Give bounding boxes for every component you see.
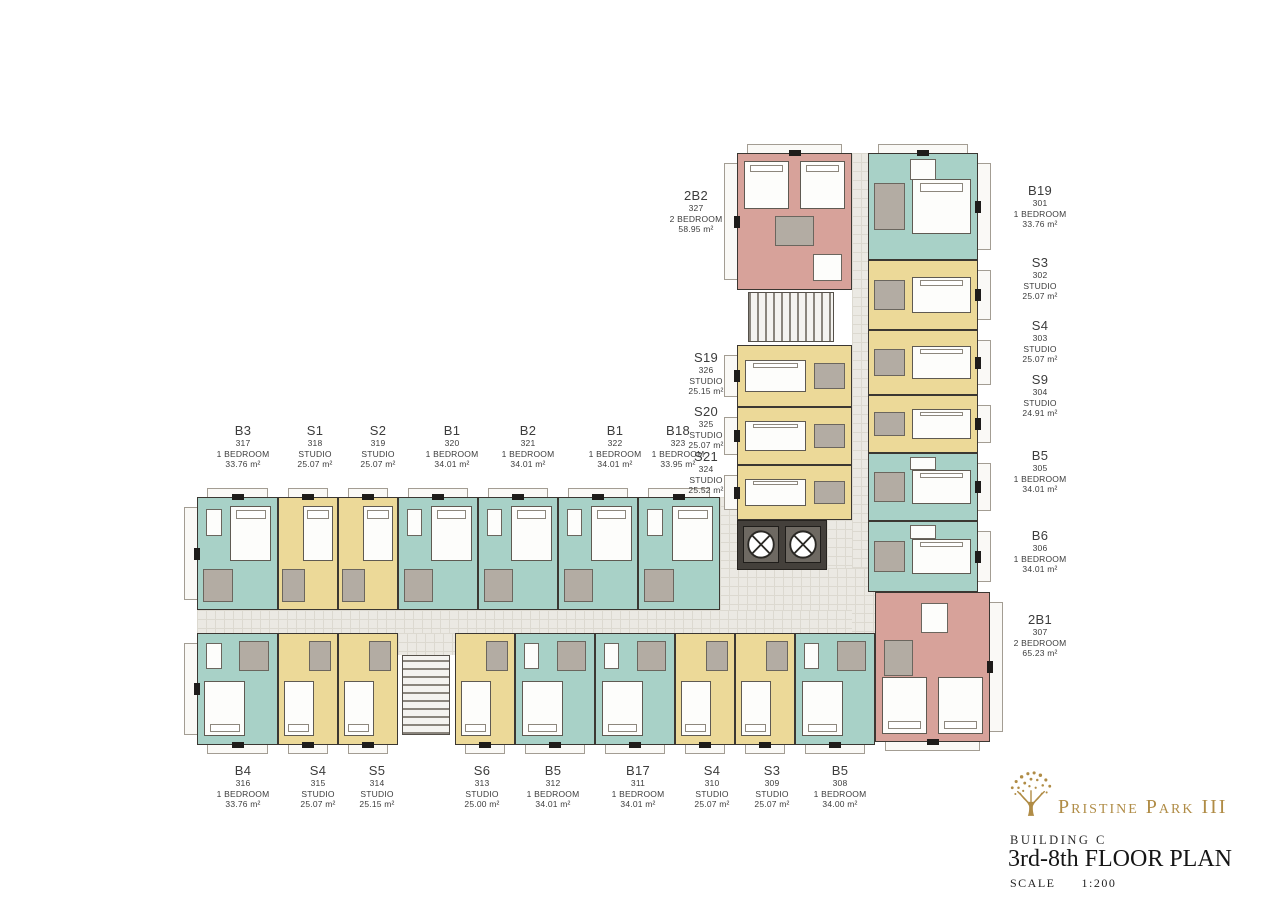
bed-pillow xyxy=(437,510,466,519)
window-mark xyxy=(927,739,939,745)
bed-pillow xyxy=(367,510,388,519)
unit-number: 313 xyxy=(436,778,528,789)
bed-pillow xyxy=(753,481,798,485)
window-mark xyxy=(302,742,314,748)
unit-block-322 xyxy=(558,497,638,610)
bathroom xyxy=(874,412,904,437)
unit-block-316 xyxy=(197,633,278,745)
bathroom xyxy=(404,569,434,602)
unit-area: 34.01 m² xyxy=(482,459,574,470)
dining-table xyxy=(910,457,936,470)
bed xyxy=(938,677,983,733)
bed-pillow xyxy=(753,424,798,428)
unit-label-303: S4303STUDIO25.07 m² xyxy=(994,318,1086,365)
window-mark xyxy=(592,494,604,500)
unit-block-309 xyxy=(735,633,795,745)
dining-table xyxy=(813,254,842,281)
bathroom xyxy=(309,641,331,672)
unit-area: 33.76 m² xyxy=(197,799,289,810)
bed-pillow xyxy=(465,724,486,732)
unit-block-305 xyxy=(868,453,978,521)
window-mark xyxy=(917,150,929,156)
unit-block-324 xyxy=(737,465,852,520)
bed xyxy=(745,360,806,391)
bathroom xyxy=(874,183,904,229)
unit-area: 33.76 m² xyxy=(994,219,1086,230)
window-mark xyxy=(699,742,711,748)
unit-area: 25.07 m² xyxy=(671,440,741,451)
floor-plan-title: 3rd-8th FLOOR PLAN xyxy=(1008,846,1232,873)
unit-type: STUDIO xyxy=(994,281,1086,292)
unit-label-325: S20325STUDIO25.07 m² xyxy=(671,404,741,451)
unit-type: 1 BEDROOM xyxy=(197,789,289,800)
unit-number: 327 xyxy=(653,203,739,214)
unit-number: 325 xyxy=(671,419,741,430)
bathroom xyxy=(766,641,788,672)
unit-area: 25.52 m² xyxy=(671,485,741,496)
window-mark xyxy=(362,742,374,748)
dining-table xyxy=(921,603,948,633)
bed xyxy=(745,479,806,507)
bed xyxy=(363,506,393,562)
bed-pillow xyxy=(528,724,557,732)
bathroom xyxy=(239,641,269,672)
unit-block-304 xyxy=(868,395,978,453)
window-mark xyxy=(975,201,981,213)
unit-block-323 xyxy=(638,497,720,610)
unit-area: 34.01 m² xyxy=(994,564,1086,575)
bed xyxy=(461,681,491,736)
unit-block-308 xyxy=(795,633,875,745)
unit-type: 1 BEDROOM xyxy=(994,554,1086,565)
bed-pillow xyxy=(920,349,963,354)
unit-block-319 xyxy=(338,497,398,610)
bed xyxy=(344,681,374,736)
bathroom xyxy=(564,569,594,602)
bed xyxy=(912,277,970,312)
bed xyxy=(912,346,970,379)
unit-number: 304 xyxy=(994,387,1086,398)
dining-table xyxy=(910,159,936,180)
unit-code: B19 xyxy=(994,183,1086,198)
window-mark xyxy=(829,742,841,748)
bed xyxy=(744,161,789,210)
bed xyxy=(912,470,970,504)
unit-label-302: S3302STUDIO25.07 m² xyxy=(994,255,1086,302)
unit-block-310 xyxy=(675,633,735,745)
bathroom xyxy=(484,569,514,602)
unit-code: S19 xyxy=(671,350,741,365)
unit-label-324: S21324STUDIO25.52 m² xyxy=(671,449,741,496)
elevator-core xyxy=(737,520,827,570)
unit-number: 305 xyxy=(994,463,1086,474)
bathroom xyxy=(884,640,913,676)
unit-type: STUDIO xyxy=(671,376,741,387)
unit-number: 326 xyxy=(671,365,741,376)
window-mark xyxy=(194,548,200,560)
unit-number: 324 xyxy=(671,464,741,475)
bed-pillow xyxy=(808,724,837,732)
unit-block-302 xyxy=(868,260,978,330)
bed-pillow xyxy=(920,542,963,547)
bathroom xyxy=(775,216,813,246)
unit-block-327 xyxy=(737,153,852,290)
unit-code: B4 xyxy=(197,763,289,778)
dining-table xyxy=(647,509,663,536)
unit-code: B5 xyxy=(994,448,1086,463)
bathroom xyxy=(874,472,904,501)
dining-table xyxy=(604,643,620,669)
unit-area: 24.91 m² xyxy=(994,408,1086,419)
bathroom xyxy=(282,569,304,602)
unit-block-320 xyxy=(398,497,478,610)
bathroom xyxy=(644,569,674,602)
bathroom xyxy=(342,569,364,602)
window-mark xyxy=(987,661,993,673)
corridor-segment xyxy=(197,610,852,633)
bed xyxy=(431,506,472,562)
bed-pillow xyxy=(348,724,369,732)
unit-label-306: B63061 BEDROOM34.01 m² xyxy=(994,528,1086,575)
window-mark xyxy=(362,494,374,500)
unit-label-304: S9304STUDIO24.91 m² xyxy=(994,372,1086,419)
unit-code: S9 xyxy=(994,372,1086,387)
bed-pillow xyxy=(750,165,783,172)
bed-pillow xyxy=(210,724,240,732)
unit-label-307: 2B13072 BEDROOM65.23 m² xyxy=(994,612,1086,659)
elevator-car-icon xyxy=(743,526,779,563)
unit-area: 65.23 m² xyxy=(994,648,1086,659)
unit-label-305: B53051 BEDROOM34.01 m² xyxy=(994,448,1086,495)
unit-code: S3 xyxy=(994,255,1086,270)
bed xyxy=(303,506,333,562)
bathroom xyxy=(874,541,904,571)
unit-block-306 xyxy=(868,521,978,592)
project-name: Pristine Park III xyxy=(1058,796,1227,819)
window-mark xyxy=(629,742,641,748)
window-mark xyxy=(549,742,561,748)
bed-pillow xyxy=(920,280,963,285)
unit-type: STUDIO xyxy=(994,344,1086,355)
bed-pillow xyxy=(597,510,626,519)
unit-block-321 xyxy=(478,497,558,610)
unit-area: 34.01 m² xyxy=(994,484,1086,495)
unit-type: 1 BEDROOM xyxy=(994,474,1086,485)
unit-block-317 xyxy=(197,497,278,610)
stairwell xyxy=(748,292,834,342)
bathroom xyxy=(203,569,233,602)
unit-type: 1 BEDROOM xyxy=(592,789,684,800)
unit-label-316: B43161 BEDROOM33.76 m² xyxy=(197,763,289,810)
unit-number: 311 xyxy=(592,778,684,789)
unit-label-311: B173111 BEDROOM34.01 m² xyxy=(592,763,684,810)
bed-pillow xyxy=(685,724,706,732)
unit-block-325 xyxy=(737,407,852,465)
bed-pillow xyxy=(745,724,766,732)
dining-table xyxy=(407,509,423,536)
window-mark xyxy=(302,494,314,500)
bed xyxy=(912,179,970,234)
bed-pillow xyxy=(806,165,839,172)
bed xyxy=(602,681,643,736)
bathroom xyxy=(486,641,508,672)
unit-code: B2 xyxy=(482,423,574,438)
bed-pillow xyxy=(288,724,309,732)
bathroom xyxy=(837,641,867,672)
unit-area: 25.00 m² xyxy=(436,799,528,810)
bathroom xyxy=(557,641,587,672)
unit-code: 2B1 xyxy=(994,612,1086,627)
bed xyxy=(672,506,714,562)
unit-code: S6 xyxy=(436,763,528,778)
bathroom xyxy=(814,424,846,449)
bed-pillow xyxy=(753,363,798,368)
elevator-car-icon xyxy=(785,526,821,563)
bathroom xyxy=(874,280,904,310)
scale-value: 1:200 xyxy=(1082,876,1117,890)
dining-table xyxy=(567,509,583,536)
bed xyxy=(745,421,806,450)
scale-row: SCALE1:200 xyxy=(1010,876,1116,891)
bed xyxy=(511,506,552,562)
title-block: Pristine Park III BUILDING C 3rd-8th FLO… xyxy=(1000,770,1250,895)
bed xyxy=(522,681,563,736)
window-mark xyxy=(232,742,244,748)
unit-area: 25.07 m² xyxy=(994,291,1086,302)
bed xyxy=(800,161,845,210)
bed xyxy=(681,681,711,736)
unit-number: 307 xyxy=(994,627,1086,638)
unit-block-313 xyxy=(455,633,515,745)
unit-type: 1 BEDROOM xyxy=(482,449,574,460)
bed xyxy=(912,539,970,575)
unit-block-301 xyxy=(868,153,978,260)
unit-label-327: 2B23272 BEDROOM58.95 m² xyxy=(653,188,739,235)
unit-label-321: B23211 BEDROOM34.01 m² xyxy=(482,423,574,470)
bathroom xyxy=(814,363,846,389)
window-mark xyxy=(975,289,981,301)
bed-pillow xyxy=(236,510,266,519)
window-mark xyxy=(975,551,981,563)
unit-number: 301 xyxy=(994,198,1086,209)
window-mark xyxy=(512,494,524,500)
unit-block-307 xyxy=(875,592,990,742)
unit-type: 2 BEDROOM xyxy=(653,214,739,225)
bathroom xyxy=(637,641,667,672)
bed xyxy=(802,681,843,736)
dining-table xyxy=(804,643,820,669)
unit-type: 2 BEDROOM xyxy=(994,638,1086,649)
unit-number: 306 xyxy=(994,543,1086,554)
bed-pillow xyxy=(944,721,977,730)
unit-type: STUDIO xyxy=(671,475,741,486)
unit-type: 1 BEDROOM xyxy=(994,209,1086,220)
unit-number: 303 xyxy=(994,333,1086,344)
unit-type: STUDIO xyxy=(436,789,528,800)
corridor-segment xyxy=(398,633,455,655)
unit-code: S21 xyxy=(671,449,741,464)
unit-label-313: S6313STUDIO25.00 m² xyxy=(436,763,528,810)
bed-pillow xyxy=(920,412,963,416)
window-mark xyxy=(759,742,771,748)
dining-table xyxy=(524,643,540,669)
dining-table xyxy=(487,509,503,536)
unit-number: 321 xyxy=(482,438,574,449)
dining-table xyxy=(206,643,222,669)
unit-area: 58.95 m² xyxy=(653,224,739,235)
bathroom xyxy=(814,481,846,504)
bed-pillow xyxy=(920,183,963,191)
unit-label-301: B193011 BEDROOM33.76 m² xyxy=(994,183,1086,230)
unit-block-311 xyxy=(595,633,675,745)
unit-code: 2B2 xyxy=(653,188,739,203)
unit-block-312 xyxy=(515,633,595,745)
unit-block-326 xyxy=(737,345,852,407)
unit-code: B17 xyxy=(592,763,684,778)
bed xyxy=(230,506,271,562)
unit-block-314 xyxy=(338,633,398,745)
bathroom xyxy=(369,641,391,672)
pristine-park-tree-logo-icon xyxy=(1006,770,1056,818)
bed xyxy=(882,677,927,733)
window-mark xyxy=(975,418,981,430)
scale-label: SCALE xyxy=(1010,876,1056,890)
bed xyxy=(204,681,245,736)
bed-pillow xyxy=(517,510,546,519)
unit-code: S4 xyxy=(994,318,1086,333)
bathroom xyxy=(874,349,904,377)
bed xyxy=(591,506,632,562)
bed-pillow xyxy=(307,510,328,519)
bathroom xyxy=(706,641,728,672)
unit-area: 25.07 m² xyxy=(994,354,1086,365)
dining-table xyxy=(910,525,936,539)
unit-type: STUDIO xyxy=(671,430,741,441)
unit-number: 302 xyxy=(994,270,1086,281)
unit-block-303 xyxy=(868,330,978,395)
unit-code: B6 xyxy=(994,528,1086,543)
unit-code: S20 xyxy=(671,404,741,419)
window-mark xyxy=(789,150,801,156)
bed xyxy=(741,681,771,736)
stairwell xyxy=(402,655,450,735)
bed xyxy=(284,681,314,736)
unit-type: STUDIO xyxy=(994,398,1086,409)
window-mark xyxy=(232,494,244,500)
unit-block-318 xyxy=(278,497,338,610)
unit-area: 34.01 m² xyxy=(592,799,684,810)
unit-label-326: S19326STUDIO25.15 m² xyxy=(671,350,741,397)
bed-pillow xyxy=(678,510,708,519)
dining-table xyxy=(206,509,222,536)
window-mark xyxy=(194,683,200,695)
window-mark xyxy=(975,481,981,493)
corridor-segment xyxy=(827,520,852,570)
bed-pillow xyxy=(608,724,637,732)
unit-block-315 xyxy=(278,633,338,745)
bed-pillow xyxy=(920,473,963,478)
corridor-segment xyxy=(852,153,868,592)
window-mark xyxy=(479,742,491,748)
bed-pillow xyxy=(888,721,921,730)
bed xyxy=(912,409,970,438)
window-mark xyxy=(432,494,444,500)
unit-area: 25.15 m² xyxy=(671,386,741,397)
window-mark xyxy=(975,357,981,369)
unit-number: 316 xyxy=(197,778,289,789)
